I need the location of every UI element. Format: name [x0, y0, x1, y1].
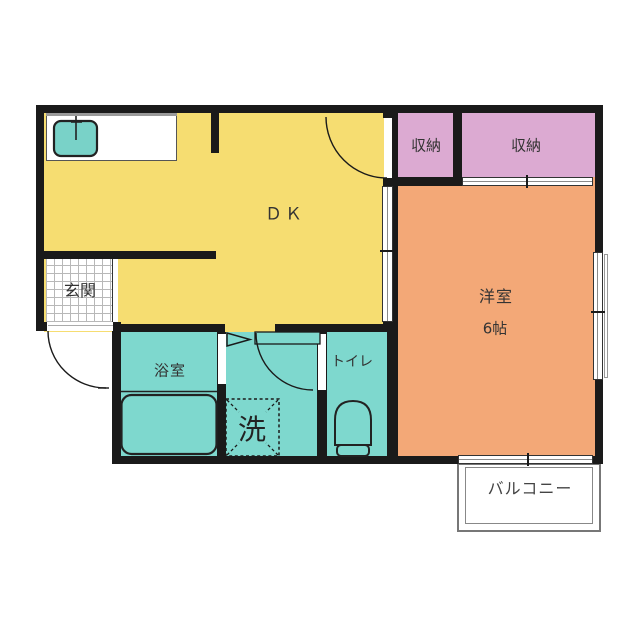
wall-closet-left-bottom [398, 177, 462, 186]
western-right-window [593, 252, 603, 380]
wall-bottomleft-vertical [112, 322, 121, 464]
kitchen-counter-back-edge [46, 113, 177, 116]
dk-western-slider-tick [380, 250, 395, 252]
western-right-window-track [597, 253, 598, 379]
label-toilet: トイレ [331, 355, 373, 369]
floor-plan: ＤＫ 収納 収納 洋室 6帖 玄関 浴室 トイレ 洗 バルコニー [0, 0, 640, 640]
western-right-window-tick [591, 311, 605, 313]
wall-left [36, 105, 44, 330]
wall-divider-western-side [393, 186, 398, 322]
entrance-door-arc [48, 331, 106, 388]
label-balcony: バルコニー [488, 481, 573, 497]
wall-divider-bottom [383, 322, 398, 332]
label-western-size: 6帖 [483, 322, 508, 337]
wall-entrance-top [44, 251, 216, 259]
kitchen-counter [46, 115, 177, 161]
entrance-step [113, 259, 118, 322]
western-right-window-sill [604, 254, 608, 378]
entrance-door-opening [47, 322, 113, 331]
label-dk: ＤＫ [265, 207, 305, 224]
wall-divider-closet-side [392, 118, 398, 178]
wall-kitchen-stub [211, 113, 219, 153]
wall-divider-mid [383, 178, 398, 186]
wall-wetarea-top-left [112, 324, 225, 332]
wall-closet-divider [453, 113, 462, 177]
label-closet-right: 収納 [511, 139, 541, 154]
closet-slider-tick [526, 175, 528, 188]
label-entrance: 玄関 [64, 283, 96, 299]
balcony-window-track [459, 459, 592, 460]
label-closet-left: 収納 [411, 139, 441, 154]
toilet-door-opening [318, 334, 326, 390]
label-laundry: 洗 [238, 416, 266, 444]
label-bathroom: 浴室 [154, 364, 186, 379]
entrance-threshold [48, 325, 113, 326]
dk-western-slider-track [387, 187, 388, 321]
wall-wetarea-top-right [275, 324, 398, 332]
label-western-room: 洋室 [479, 289, 513, 305]
balcony-window-tick [527, 453, 529, 466]
wall-divider-top [383, 105, 398, 118]
wall-toilet-western [387, 332, 398, 456]
bath-door-opening [218, 334, 226, 384]
closet-left-door-opening [384, 118, 392, 178]
wall-top [36, 105, 603, 113]
